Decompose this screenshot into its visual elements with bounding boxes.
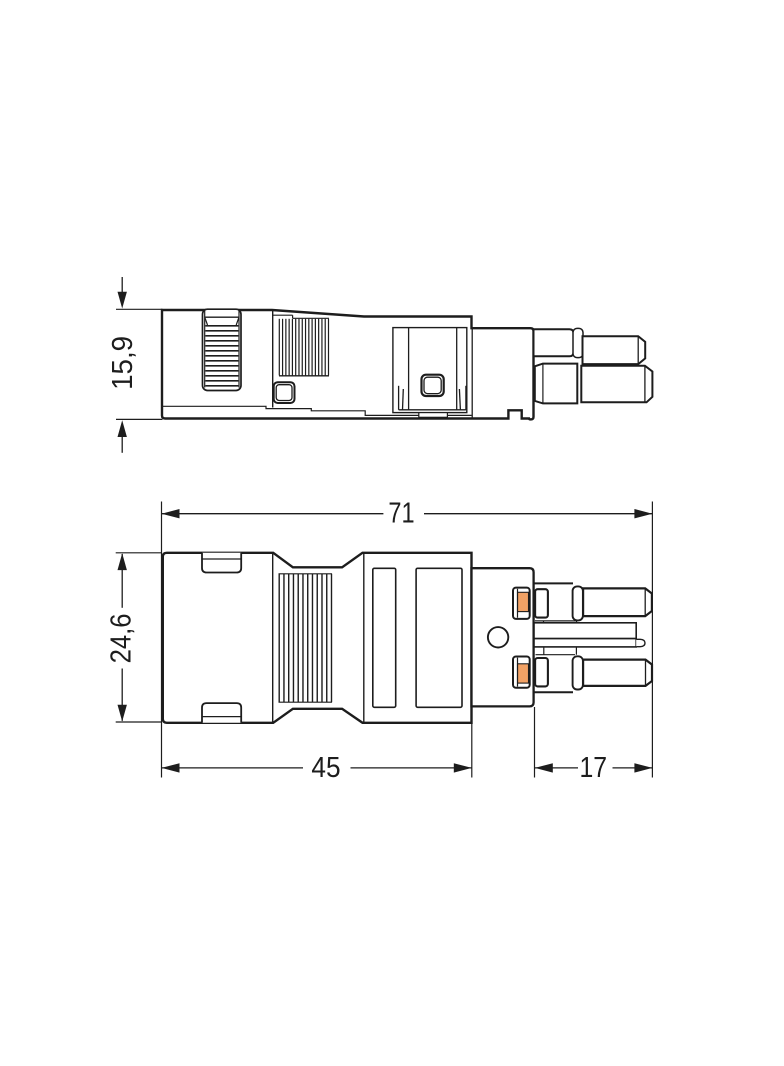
svg-text:71: 71	[388, 497, 414, 529]
svg-text:24,6: 24,6	[105, 613, 137, 663]
svg-text:45: 45	[311, 752, 340, 784]
svg-text:17: 17	[580, 752, 608, 784]
svg-text:15,9: 15,9	[107, 336, 139, 390]
